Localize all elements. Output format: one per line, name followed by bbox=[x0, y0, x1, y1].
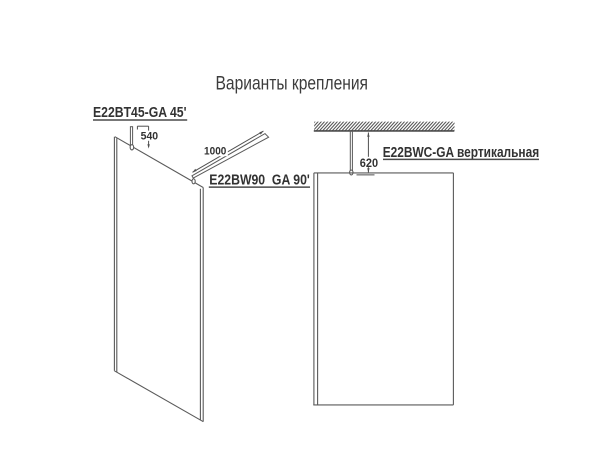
svg-text:1000: 1000 bbox=[204, 146, 226, 158]
svg-text:E22BWC-GA вертикальная: E22BWC-GA вертикальная bbox=[383, 145, 540, 161]
svg-text:E22BW90 GA 90': E22BW90 GA 90' bbox=[209, 172, 309, 188]
svg-text:620: 620 bbox=[360, 158, 378, 170]
svg-text:E22BT45-GA 45': E22BT45-GA 45' bbox=[93, 105, 187, 121]
svg-text:540: 540 bbox=[141, 131, 159, 143]
svg-text:Варианты крепления: Варианты крепления bbox=[216, 72, 369, 94]
